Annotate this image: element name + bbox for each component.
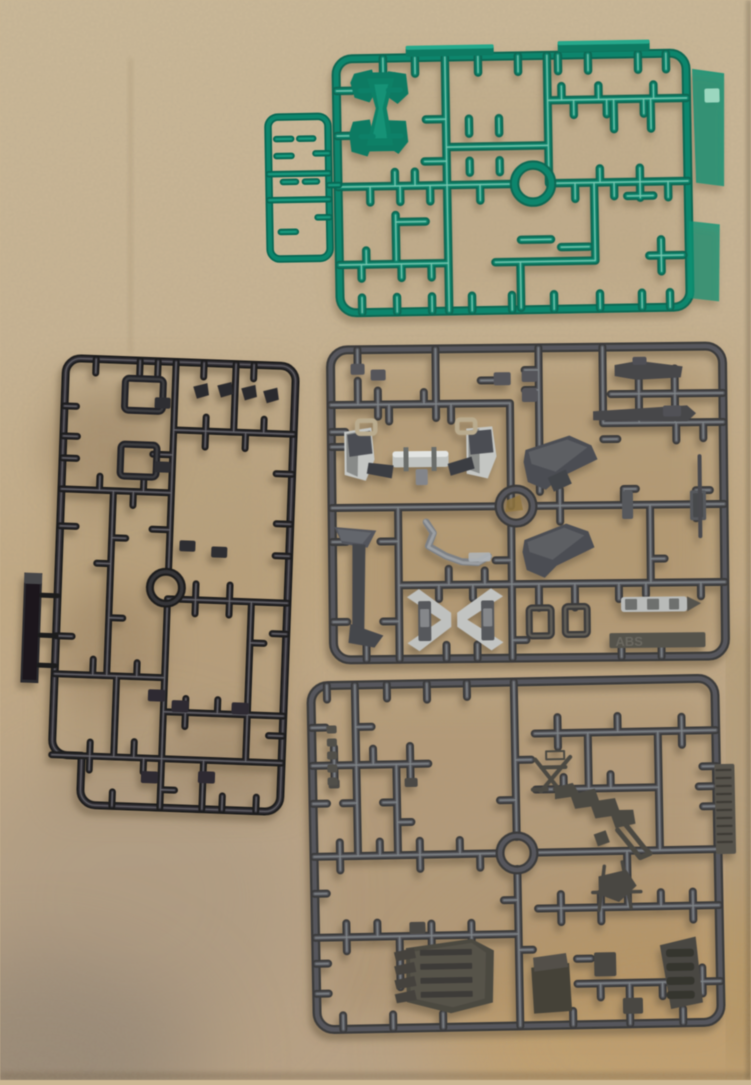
svg-text:ABS: ABS [615,634,643,649]
